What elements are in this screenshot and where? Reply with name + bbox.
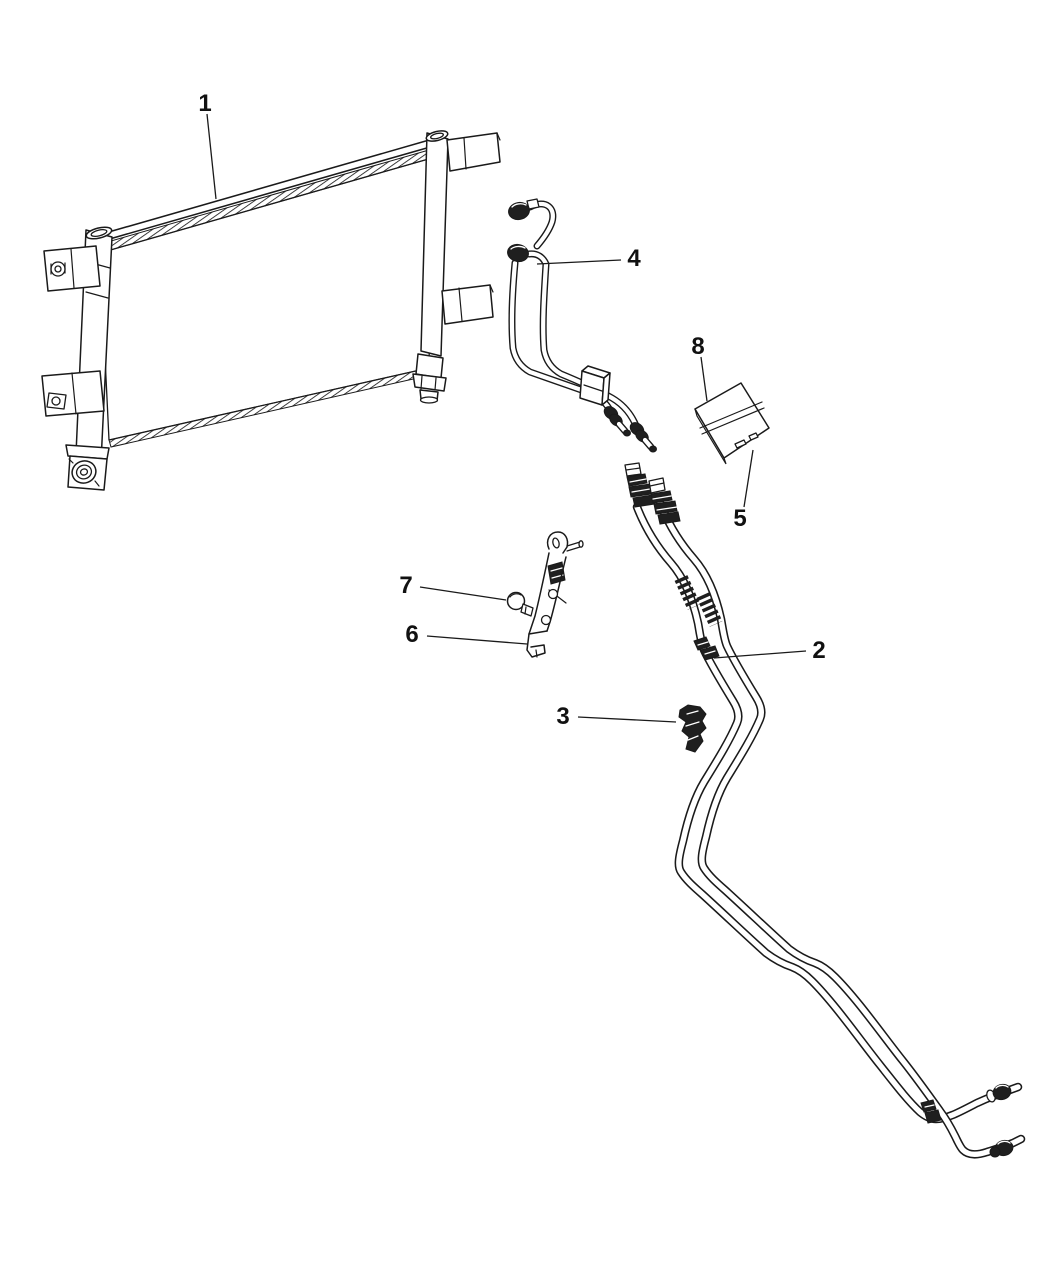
inlet-port-foot [66, 445, 109, 490]
oil-cooler-lines [625, 463, 1021, 1157]
mounting-bracket-lower-left [42, 371, 104, 416]
leader-5 [744, 450, 753, 507]
connector-cap-b [649, 478, 665, 493]
line-a [637, 507, 1018, 1119]
callout-label-5: 5 [733, 505, 746, 532]
end-nut-a [985, 1082, 1013, 1103]
parts-diagram-canvas: 1 2 3 4 5 6 7 8 [0, 0, 1050, 1275]
callout-label-2: 2 [812, 637, 825, 664]
mounting-bracket-upper-right [447, 133, 500, 171]
leader-4 [537, 260, 621, 264]
junction-block [580, 366, 610, 405]
leader-6 [427, 636, 527, 644]
leader-1 [207, 114, 216, 199]
parts-diagram: 1 2 3 4 5 6 7 8 [0, 0, 1050, 1275]
retaining-clip [679, 705, 706, 752]
flare-nut-upper [507, 199, 539, 221]
line-b [660, 503, 1021, 1154]
oil-cooler-assembly [42, 129, 500, 490]
leader-8 [701, 357, 707, 401]
callout-label-3: 3 [556, 703, 569, 730]
tube-assembly-4 [506, 199, 657, 452]
connector-ribs-b [651, 491, 680, 524]
callout-label-7: 7 [399, 572, 412, 599]
mounting-bracket [527, 532, 583, 657]
tube-right [529, 254, 637, 428]
leader-7 [420, 587, 506, 600]
callout-label-4: 4 [627, 245, 641, 272]
callout-label-8: 8 [691, 333, 704, 360]
callout-label-1: 1 [198, 90, 211, 117]
line-clamp-mid [694, 637, 719, 660]
outlet-fitting [413, 354, 446, 403]
callout-label-6: 6 [405, 621, 418, 648]
bolt [508, 593, 534, 617]
tube-end-fitting-2 [628, 420, 657, 452]
mounting-bracket-upper-left [44, 246, 100, 291]
mounting-bracket-lower-right [442, 285, 493, 324]
tube-hook [530, 204, 553, 246]
bracket-pin [567, 542, 580, 551]
leader-3 [578, 717, 676, 722]
flare-nut-lower [506, 243, 530, 264]
connector-cap-a [625, 463, 641, 476]
